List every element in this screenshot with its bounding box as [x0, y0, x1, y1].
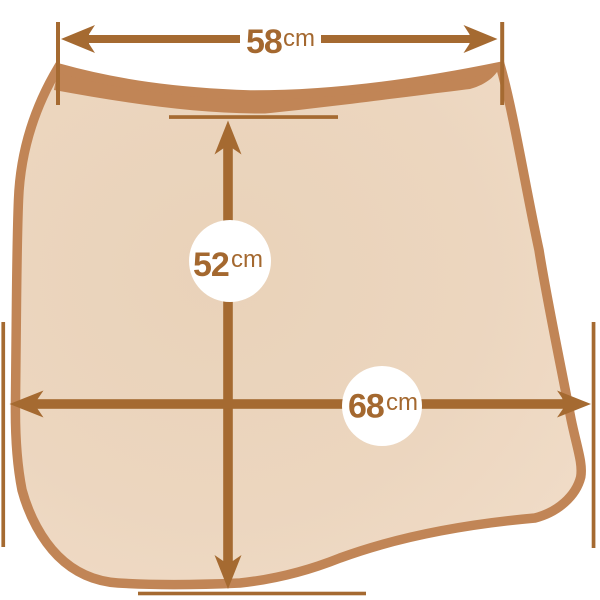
- svg-text:cm: cm: [283, 25, 315, 52]
- svg-text:58: 58: [246, 23, 282, 61]
- svg-text:68: 68: [348, 388, 384, 426]
- svg-text:cm: cm: [231, 246, 263, 273]
- svg-text:52: 52: [193, 246, 229, 284]
- svg-text:cm: cm: [386, 389, 418, 416]
